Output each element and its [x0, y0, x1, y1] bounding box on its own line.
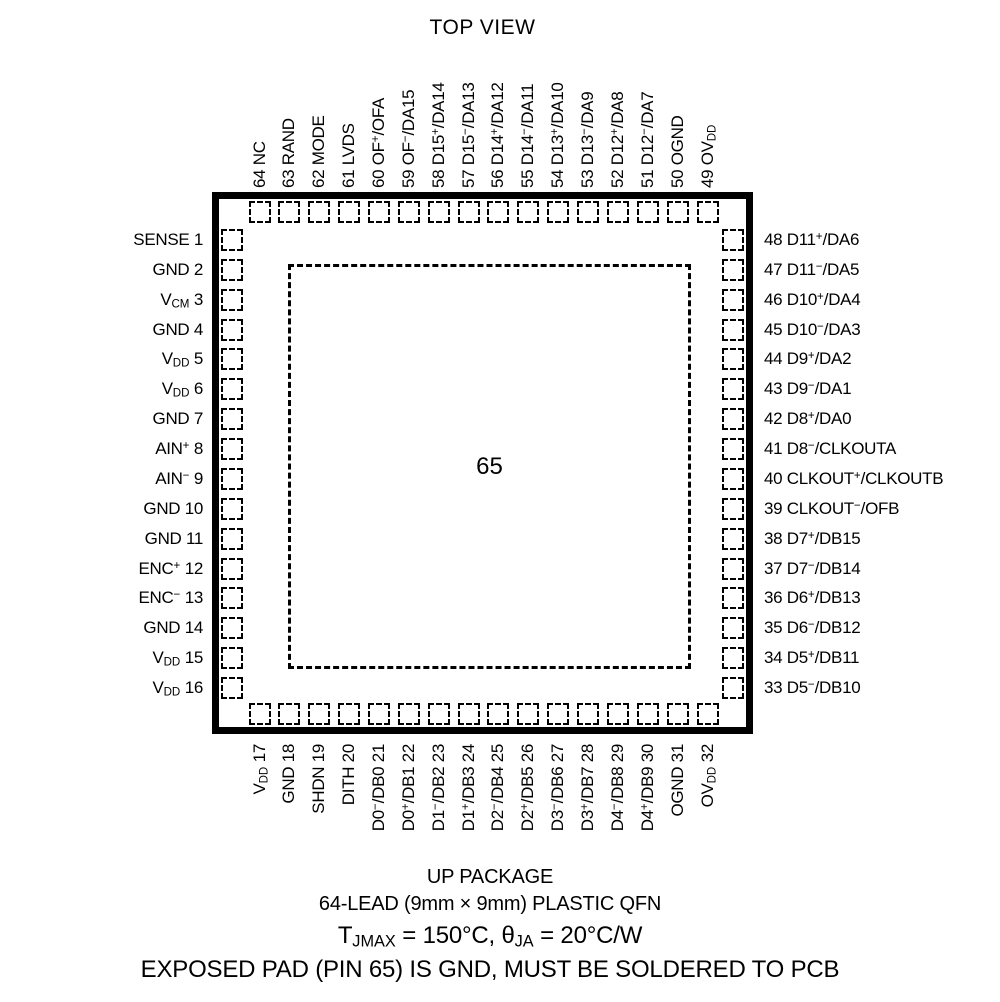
- pad-pin-38: [722, 528, 744, 550]
- pad-pin-34: [722, 647, 744, 669]
- pad-pin-16: [221, 677, 243, 699]
- pad-pin-44: [722, 348, 744, 370]
- pin-label-64: 64 NC: [250, 38, 270, 188]
- pin-label-40: 40 CLKOUT+/CLKOUTB: [764, 469, 996, 489]
- pad-pin-2: [221, 259, 243, 281]
- pad-pin-59: [398, 201, 420, 223]
- pin-label-14: GND 14: [33, 618, 203, 638]
- pad-pin-41: [722, 438, 744, 460]
- pad-pin-6: [221, 378, 243, 400]
- pad-pin-13: [221, 587, 243, 609]
- pin-label-11: GND 11: [33, 529, 203, 549]
- pin-label-17: VDD 17: [250, 744, 270, 866]
- pad-pin-21: [368, 703, 390, 725]
- pad-pin-55: [517, 201, 539, 223]
- pin-label-50: 50 OGND: [668, 38, 688, 188]
- pad-pin-20: [338, 703, 360, 725]
- pad-pin-17: [249, 703, 271, 725]
- pin-label-33: 33 D5−/DB10: [764, 678, 996, 698]
- pin-label-62: 62 MODE: [309, 38, 329, 188]
- pad-pin-61: [338, 201, 360, 223]
- pin-label-9: AIN− 9: [33, 469, 203, 489]
- pin-label-49: 49 OVDD: [698, 38, 718, 188]
- thermal-note: TJMAX = 150°C, θJA = 20°C/W: [0, 922, 980, 950]
- pin-label-19: SHDN 19: [309, 744, 329, 866]
- pad-pin-29: [607, 703, 629, 725]
- pin-label-13: ENC− 13: [33, 588, 203, 608]
- pad-pin-40: [722, 468, 744, 490]
- pad-pin-14: [221, 617, 243, 639]
- pin-label-22: D0+/DB1 22: [399, 744, 419, 866]
- pin-label-30: D4+/DB9 30: [638, 744, 658, 866]
- package-name: UP PACKAGE: [0, 866, 980, 889]
- pad-pin-12: [221, 558, 243, 580]
- pad-pin-15: [221, 647, 243, 669]
- pin-label-20: DITH 20: [339, 744, 359, 866]
- pad-pin-28: [577, 703, 599, 725]
- pin-label-43: 43 D9−/DA1: [764, 379, 996, 399]
- pin-label-46: 46 D10+/DA4: [764, 290, 996, 310]
- pin-label-32: OVDD 32: [698, 744, 718, 866]
- pad-pin-54: [547, 201, 569, 223]
- pin-label-63: 63 RAND: [279, 38, 299, 188]
- pin-label-7: GND 7: [33, 409, 203, 429]
- pin-label-38: 38 D7+/DB15: [764, 529, 996, 549]
- pad-pin-35: [722, 617, 744, 639]
- pad-pin-7: [221, 408, 243, 430]
- pad-pin-4: [221, 319, 243, 341]
- pin-label-21: D0−/DB0 21: [369, 744, 389, 866]
- pad-pin-19: [308, 703, 330, 725]
- pin-label-16: VDD 16: [33, 678, 203, 698]
- pad-pin-45: [722, 319, 744, 341]
- pad-pin-22: [398, 703, 420, 725]
- pad-pin-56: [487, 201, 509, 223]
- pin-label-41: 41 D8−/CLKOUTA: [764, 439, 996, 459]
- pin-label-4: GND 4: [33, 320, 203, 340]
- pad-pin-48: [722, 229, 744, 251]
- pin-label-42: 42 D8+/DA0: [764, 409, 996, 429]
- pad-pin-9: [221, 468, 243, 490]
- pin-label-61: 61 LVDS: [339, 38, 359, 188]
- pad-pin-30: [637, 703, 659, 725]
- pin-label-51: 51 D12−/DA7: [638, 38, 658, 188]
- pad-pin-10: [221, 498, 243, 520]
- pin-label-31: OGND 31: [668, 744, 688, 866]
- pad-pin-49: [697, 201, 719, 223]
- package-description: 64-LEAD (9mm × 9mm) PLASTIC QFN: [0, 893, 980, 916]
- pad-pin-46: [722, 289, 744, 311]
- pin-label-18: GND 18: [279, 744, 299, 866]
- pin-label-58: 58 D15+/DA14: [429, 38, 449, 188]
- pad-pin-53: [577, 201, 599, 223]
- pin-label-29: D4−/DB8 29: [608, 744, 628, 866]
- pad-pin-5: [221, 348, 243, 370]
- pad-pin-36: [722, 587, 744, 609]
- pin-label-36: 36 D6+/DB13: [764, 588, 996, 608]
- pin-label-8: AIN+ 8: [33, 439, 203, 459]
- pad-pin-3: [221, 289, 243, 311]
- pin-label-23: D1−/DB2 23: [429, 744, 449, 866]
- pin-label-52: 52 D12+/DA8: [608, 38, 628, 188]
- pad-pin-51: [637, 201, 659, 223]
- pin-label-3: VCM 3: [33, 290, 203, 310]
- pin-label-35: 35 D6−/DB12: [764, 618, 996, 638]
- pad-pin-23: [428, 703, 450, 725]
- pad-pin-33: [722, 677, 744, 699]
- pad-pin-1: [221, 229, 243, 251]
- pin-label-15: VDD 15: [33, 648, 203, 668]
- exposed-pad-number: 65: [476, 453, 503, 481]
- pad-pin-52: [607, 201, 629, 223]
- pad-pin-43: [722, 378, 744, 400]
- pin-label-54: 54 D13+/DA10: [548, 38, 568, 188]
- pin-label-10: GND 10: [33, 499, 203, 519]
- pad-pin-47: [722, 259, 744, 281]
- pin-label-44: 44 D9+/DA2: [764, 349, 996, 369]
- pin-label-2: GND 2: [33, 260, 203, 280]
- pad-pin-62: [308, 201, 330, 223]
- qfn-pinout-figure: TOP VIEW 65 64 NC63 RAND62 MODE61 LVDS60…: [0, 0, 1000, 1002]
- pad-pin-63: [278, 201, 300, 223]
- pin-label-1: SENSE 1: [33, 230, 203, 250]
- pad-pin-26: [517, 703, 539, 725]
- pad-pin-18: [278, 703, 300, 725]
- pad-pin-27: [547, 703, 569, 725]
- exposed-pad-note: EXPOSED PAD (PIN 65) IS GND, MUST BE SOL…: [0, 956, 980, 984]
- pad-pin-39: [722, 498, 744, 520]
- pin-label-48: 48 D11+/DA6: [764, 230, 996, 250]
- pad-pin-42: [722, 408, 744, 430]
- pin-label-55: 55 D14−/DA11: [518, 38, 538, 188]
- pin-label-5: VDD 5: [33, 349, 203, 369]
- exposed-pad: 65: [288, 264, 691, 669]
- pad-pin-31: [667, 703, 689, 725]
- pad-pin-50: [667, 201, 689, 223]
- pin-label-47: 47 D11−/DA5: [764, 260, 996, 280]
- pin-label-12: ENC+ 12: [33, 559, 203, 579]
- pad-pin-58: [428, 201, 450, 223]
- pad-pin-25: [487, 703, 509, 725]
- figure-title: TOP VIEW: [212, 16, 753, 40]
- pad-pin-64: [249, 201, 271, 223]
- pad-pin-37: [722, 558, 744, 580]
- pin-label-60: 60 OF+/OFA: [369, 38, 389, 188]
- pad-pin-32: [697, 703, 719, 725]
- pin-label-45: 45 D10−/DA3: [764, 320, 996, 340]
- pin-label-56: 56 D14+/DA12: [488, 38, 508, 188]
- pad-pin-57: [458, 201, 480, 223]
- pin-label-53: 53 D13−/DA9: [578, 38, 598, 188]
- pin-label-28: D3+/DB7 28: [578, 744, 598, 866]
- pin-label-39: 39 CLKOUT−/OFB: [764, 499, 996, 519]
- pad-pin-8: [221, 438, 243, 460]
- pin-label-37: 37 D7−/DB14: [764, 559, 996, 579]
- pin-label-24: D1+/DB3 24: [459, 744, 479, 866]
- pad-pin-11: [221, 528, 243, 550]
- pin-label-26: D2+/DB5 26: [518, 744, 538, 866]
- pin-label-25: D2−/DB4 25: [488, 744, 508, 866]
- pin-label-59: 59 OF−/DA15: [399, 38, 419, 188]
- pin-label-34: 34 D5+/DB11: [764, 648, 996, 668]
- pin-label-27: D3−/DB6 27: [548, 744, 568, 866]
- pad-pin-24: [458, 703, 480, 725]
- pin-label-57: 57 D15−/DA13: [459, 38, 479, 188]
- pin-label-6: VDD 6: [33, 379, 203, 399]
- pad-pin-60: [368, 201, 390, 223]
